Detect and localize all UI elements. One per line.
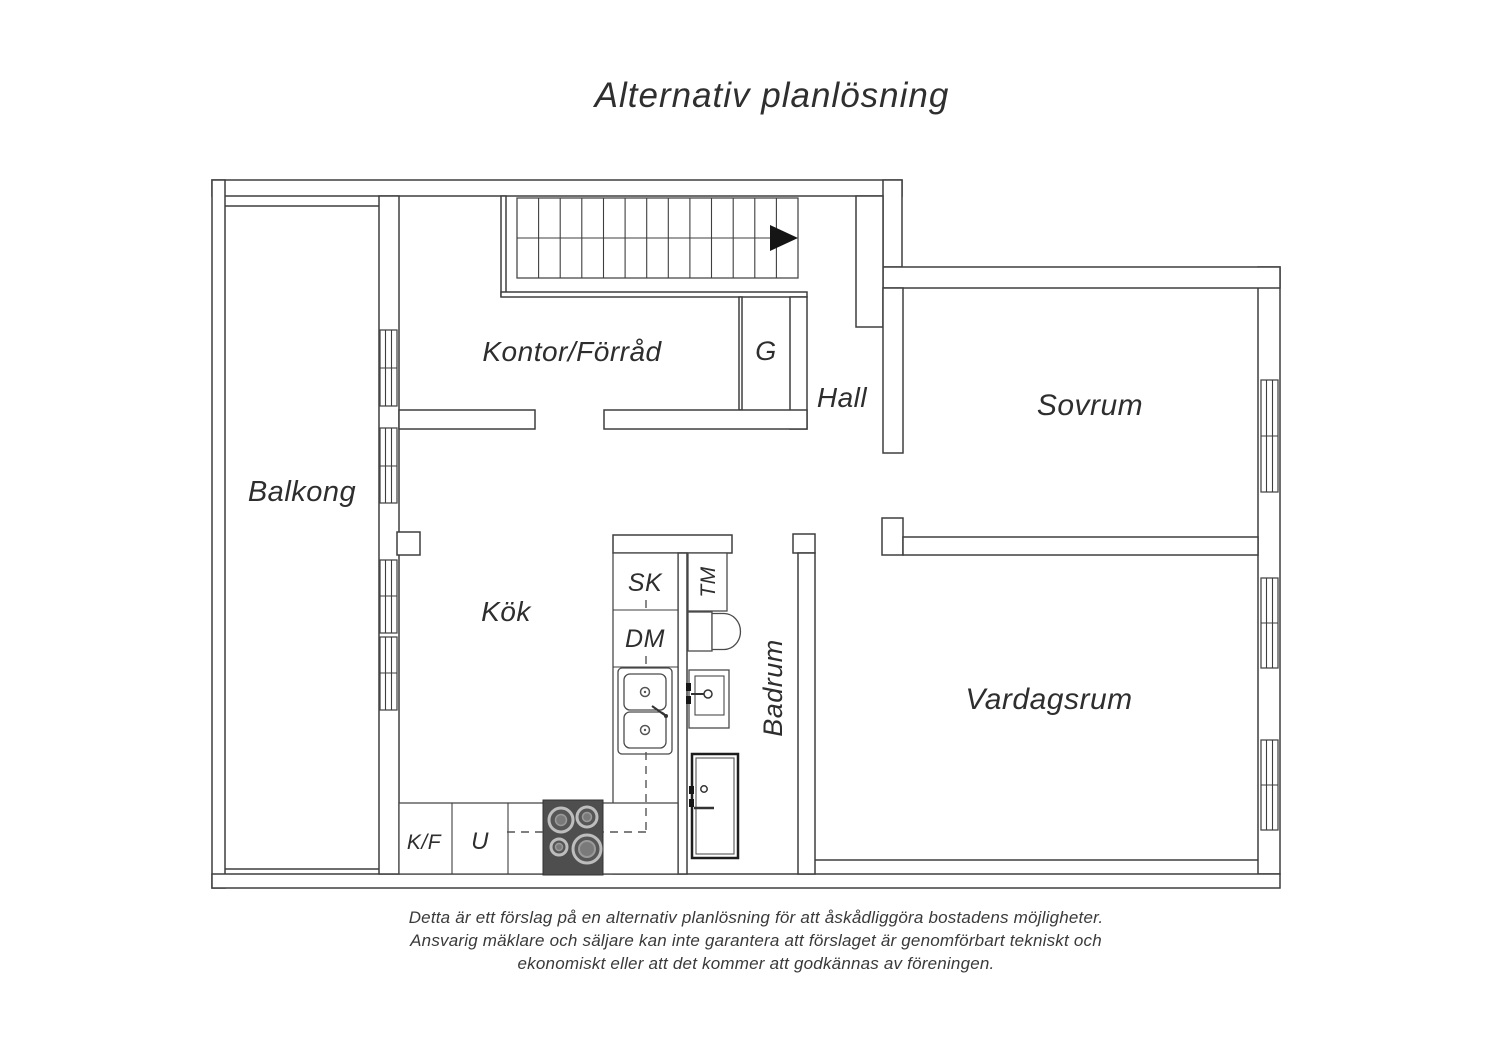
window-vardagsrum-east-2 xyxy=(1261,740,1278,830)
floor-plan-canvas: Balkong Kontor/Förråd G Hall Sovrum Kök … xyxy=(0,0,1500,1060)
room-label-garderob: G xyxy=(755,336,777,366)
room-label-hall: Hall xyxy=(817,382,868,413)
wall-kontor-bottom-left xyxy=(399,410,535,429)
window-kitchen-west-2 xyxy=(380,560,397,633)
window-kitchen-west-1 xyxy=(380,428,397,503)
wall-closet-left xyxy=(739,297,742,410)
room-label-sovrum: Sovrum xyxy=(1037,389,1143,422)
fixture-label-sk: SK xyxy=(628,569,663,597)
floor-plan-page: Alternativ planlösning xyxy=(0,0,1500,1060)
wall-stair-hall xyxy=(856,196,883,327)
room-label-kok: Kök xyxy=(481,596,532,627)
window-vardagsrum-east-1 xyxy=(1261,578,1278,668)
disclaimer-line-1: Detta är ett förslag på en alternativ pl… xyxy=(0,906,1500,929)
wall-badrum-west xyxy=(678,553,687,874)
wall-kontor-bottom-right xyxy=(604,410,807,429)
window-sovrum-east xyxy=(1261,380,1278,492)
bathroom-sink-icon xyxy=(686,670,729,728)
wall-badrum-east-top xyxy=(793,534,815,553)
stove-icon xyxy=(543,800,603,875)
balcony-door xyxy=(397,532,420,555)
wall-stair-left xyxy=(501,196,506,296)
fixture-label-kf: K/F xyxy=(407,831,442,854)
fixture-label-u: U xyxy=(471,828,489,855)
staircase xyxy=(517,198,798,278)
room-label-kontor-forrad: Kontor/Förråd xyxy=(482,336,662,367)
kitchen-sink-icon xyxy=(618,668,672,754)
wall-sovrum-west xyxy=(883,288,903,453)
room-label-badrum: Badrum xyxy=(758,639,788,737)
wall-kitchen-top xyxy=(613,535,732,553)
disclaimer-text: Detta är ett förslag på en alternativ pl… xyxy=(0,906,1500,975)
toilet-icon xyxy=(688,612,740,651)
wall-bottom-outer xyxy=(212,874,1280,888)
fixture-label-dm: DM xyxy=(625,625,665,653)
bathtub-icon xyxy=(689,754,738,858)
bathroom-fixtures xyxy=(686,553,740,858)
wall-west xyxy=(379,196,399,874)
kitchen-fixtures xyxy=(399,553,678,875)
disclaimer-line-3: ekonomiskt eller att det kommer att godk… xyxy=(0,952,1500,975)
wall-wing-top xyxy=(883,267,1280,288)
wall-sovrum-vardagsrum-divider xyxy=(903,537,1258,555)
wall-stair-bottom xyxy=(501,292,807,297)
wall-hall-west xyxy=(790,297,807,429)
wall-divider-stub xyxy=(882,518,903,555)
wall-balcony-left xyxy=(212,180,225,888)
wall-badrum-east xyxy=(798,553,815,874)
room-label-balkong: Balkong xyxy=(248,476,356,508)
wall-top-outer xyxy=(212,180,902,196)
wall-top-step xyxy=(883,180,902,267)
fixture-label-tm: TM xyxy=(697,566,720,597)
walls xyxy=(212,180,1280,888)
window-kontor-west xyxy=(380,330,397,406)
room-label-vardagsrum: Vardagsrum xyxy=(965,683,1132,716)
disclaimer-line-2: Ansvarig mäklare och säljare kan inte ga… xyxy=(0,929,1500,952)
window-kitchen-west-3 xyxy=(380,637,397,710)
